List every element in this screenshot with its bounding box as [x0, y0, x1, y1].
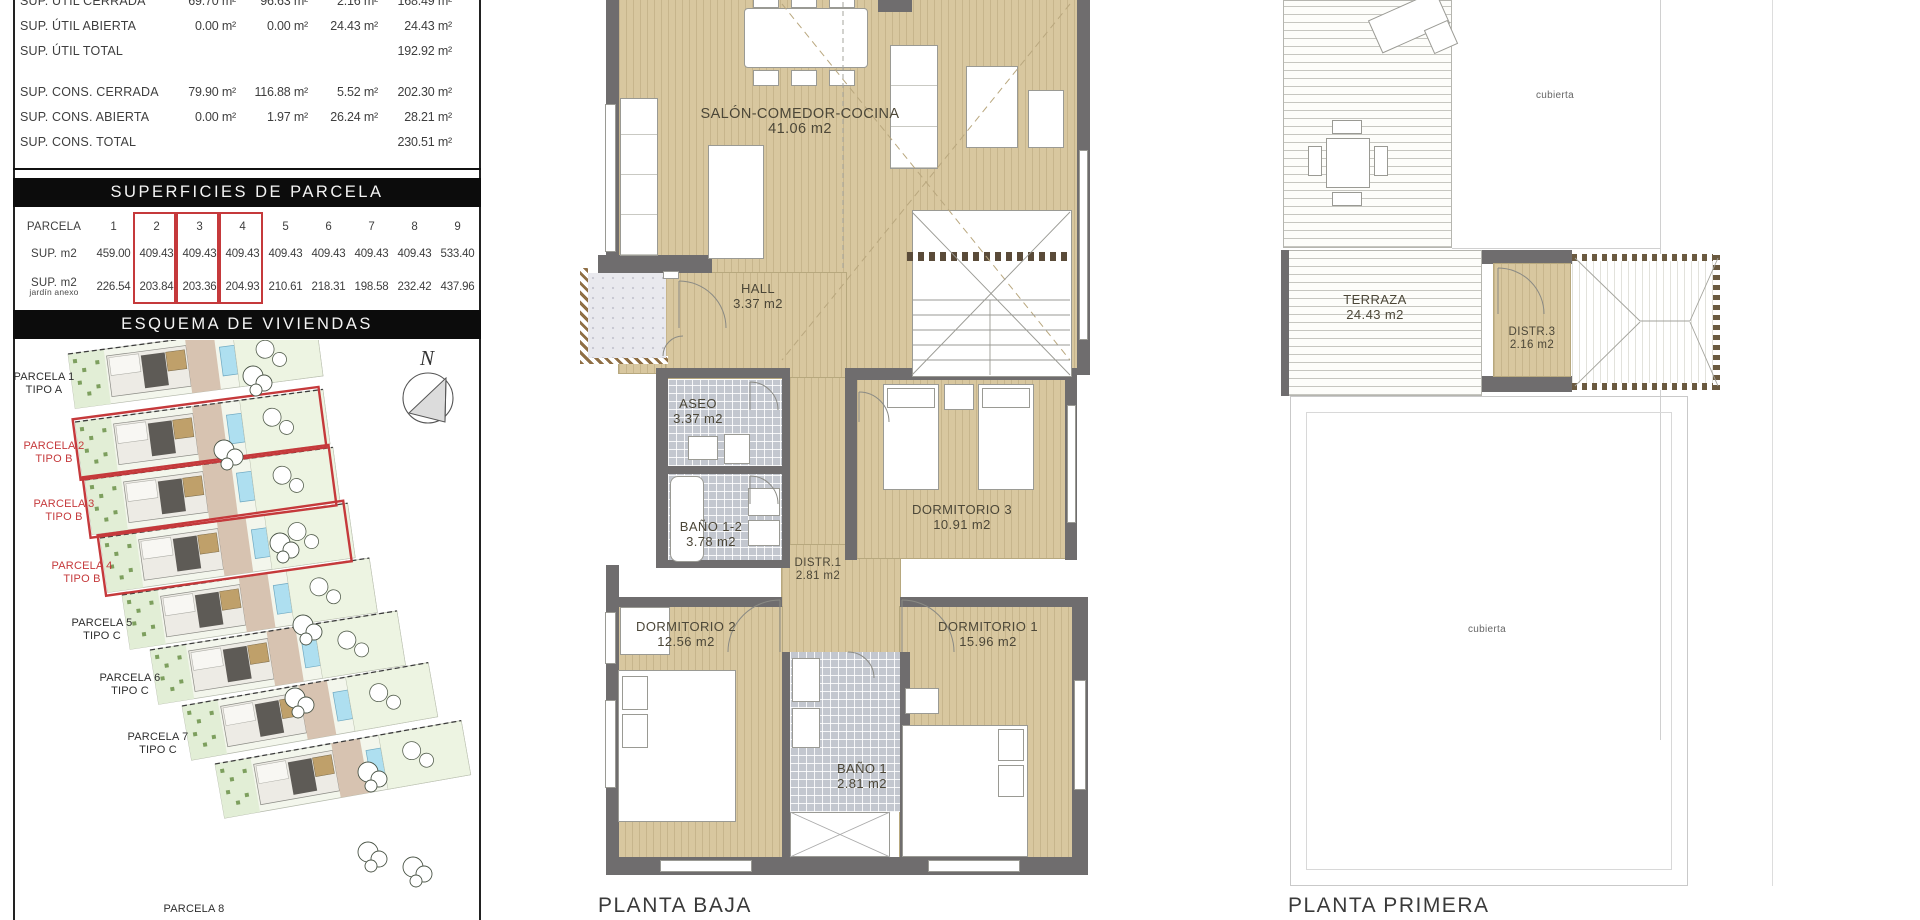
wall [900, 597, 1076, 607]
room-area: 12.56 m2 [604, 634, 768, 649]
pillow [622, 714, 648, 748]
pillow [622, 676, 648, 710]
outdoor-table [1326, 138, 1370, 188]
room-label-salon: SALÓN-COMEDOR-COCINA 41.06 m2 [668, 107, 932, 137]
window [1074, 680, 1086, 790]
room-area: 15.96 m2 [906, 634, 1070, 649]
planta-baja-plan [0, 0, 1160, 920]
wall [1482, 376, 1572, 392]
floor-corridor [790, 378, 846, 558]
pillow [982, 388, 1030, 408]
roof-hatch-border [1572, 383, 1720, 390]
roof-hip [1572, 254, 1720, 390]
room-name: BAÑO 1 [800, 761, 924, 776]
side-table [1028, 90, 1064, 148]
toilet [792, 708, 820, 748]
room-name: DISTR.3 [1490, 326, 1574, 339]
room-area: 2.16 m2 [1490, 339, 1574, 352]
room-label-hall: HALL 3.37 m2 [718, 281, 798, 311]
room-name: TERRAZA [1305, 292, 1445, 307]
roof-hatch-border [1713, 254, 1720, 390]
planta-primera-plan [1160, 0, 1920, 920]
wall [782, 368, 790, 560]
room-name: ASEO [658, 396, 738, 411]
pillow [998, 729, 1024, 761]
room-label-cubierta-bottom: cubierta [1447, 622, 1527, 637]
chair [753, 0, 779, 8]
chair [829, 70, 855, 86]
plan-sheet: { "colors": { "highlight_red": "#c5393b"… [0, 0, 1920, 920]
shower [790, 812, 890, 857]
room-label-bano1: BAÑO 1 2.81 m2 [800, 761, 924, 791]
washbasin [688, 436, 718, 460]
room-area: 3.37 m2 [718, 296, 798, 311]
wall [1482, 250, 1572, 264]
nightstand [944, 384, 974, 410]
wall [878, 0, 912, 12]
nightstand [905, 688, 939, 714]
room-area: 41.06 m2 [668, 122, 932, 137]
toilet [724, 434, 750, 464]
stairs [912, 210, 1072, 377]
room-name: HALL [718, 281, 798, 296]
window [1067, 405, 1076, 523]
pillow [887, 388, 935, 408]
room-area: 2.81 m2 [776, 570, 860, 583]
planta-primera-title: PLANTA PRIMERA [1288, 894, 1490, 918]
window [660, 860, 752, 872]
kitchen-counter [620, 98, 658, 256]
boundary-line [1772, 0, 1773, 886]
boundary-line [1452, 248, 1660, 249]
room-name: SALÓN-COMEDOR-COCINA [668, 107, 932, 122]
room-name: DORMITORIO 1 [906, 619, 1070, 634]
washbasin [792, 658, 820, 702]
room-label-dorm2: DORMITORIO 2 12.56 m2 [604, 619, 768, 649]
room-label-distr1: DISTR.1 2.81 m2 [776, 557, 860, 583]
room-area: 3.37 m2 [658, 411, 738, 426]
window [605, 104, 616, 252]
chair [1308, 146, 1322, 176]
room-area: 24.43 m2 [1305, 307, 1445, 322]
room-label-dorm3: DORMITORIO 3 10.91 m2 [880, 502, 1044, 532]
wall [656, 368, 782, 378]
room-area: 3.78 m2 [651, 534, 771, 549]
window [928, 860, 1020, 872]
chair [791, 0, 817, 8]
armchair [966, 66, 1018, 148]
chair [1332, 120, 1362, 134]
kitchen-island [708, 145, 764, 259]
chair [791, 70, 817, 86]
door-threshold [663, 271, 679, 279]
chair [829, 0, 855, 8]
porch-hatch-left [580, 268, 588, 364]
room-label-distr3: DISTR.3 2.16 m2 [1490, 326, 1574, 352]
room-label-cubierta-top: cubierta [1515, 88, 1595, 103]
room-area: 10.91 m2 [880, 517, 1044, 532]
room-name: DISTR.1 [776, 557, 860, 570]
window [605, 700, 616, 788]
wall [782, 652, 790, 857]
room-label-aseo: ASEO 3.37 m2 [658, 396, 738, 426]
pillow [998, 765, 1024, 797]
floor-terraza [1283, 250, 1482, 396]
room-name: DORMITORIO 3 [880, 502, 1044, 517]
wall [668, 466, 782, 474]
room-name: BAÑO 1-2 [651, 519, 771, 534]
room-name: DORMITORIO 2 [604, 619, 768, 634]
wall [1281, 250, 1289, 396]
room-label-dorm1: DORMITORIO 1 15.96 m2 [906, 619, 1070, 649]
stairs-edge-hatch [907, 252, 1072, 261]
floor-distr3 [1494, 264, 1570, 376]
window [1079, 150, 1088, 340]
dining-table [744, 8, 868, 68]
chair [753, 70, 779, 86]
entry-porch [588, 273, 666, 358]
room-label-terraza: TERRAZA 24.43 m2 [1305, 292, 1445, 322]
planta-baja-title: PLANTA BAJA [598, 894, 752, 918]
roof-hatch-border [1572, 254, 1720, 261]
room-label-bano12: BAÑO 1-2 3.78 m2 [651, 519, 771, 549]
roof-cubierta-inner [1306, 412, 1672, 870]
wall [608, 597, 782, 607]
chair [1332, 192, 1362, 206]
washbasin [748, 488, 780, 516]
wall [845, 378, 857, 560]
wall [598, 255, 712, 273]
chair [1374, 146, 1388, 176]
room-area: 2.81 m2 [800, 776, 924, 791]
